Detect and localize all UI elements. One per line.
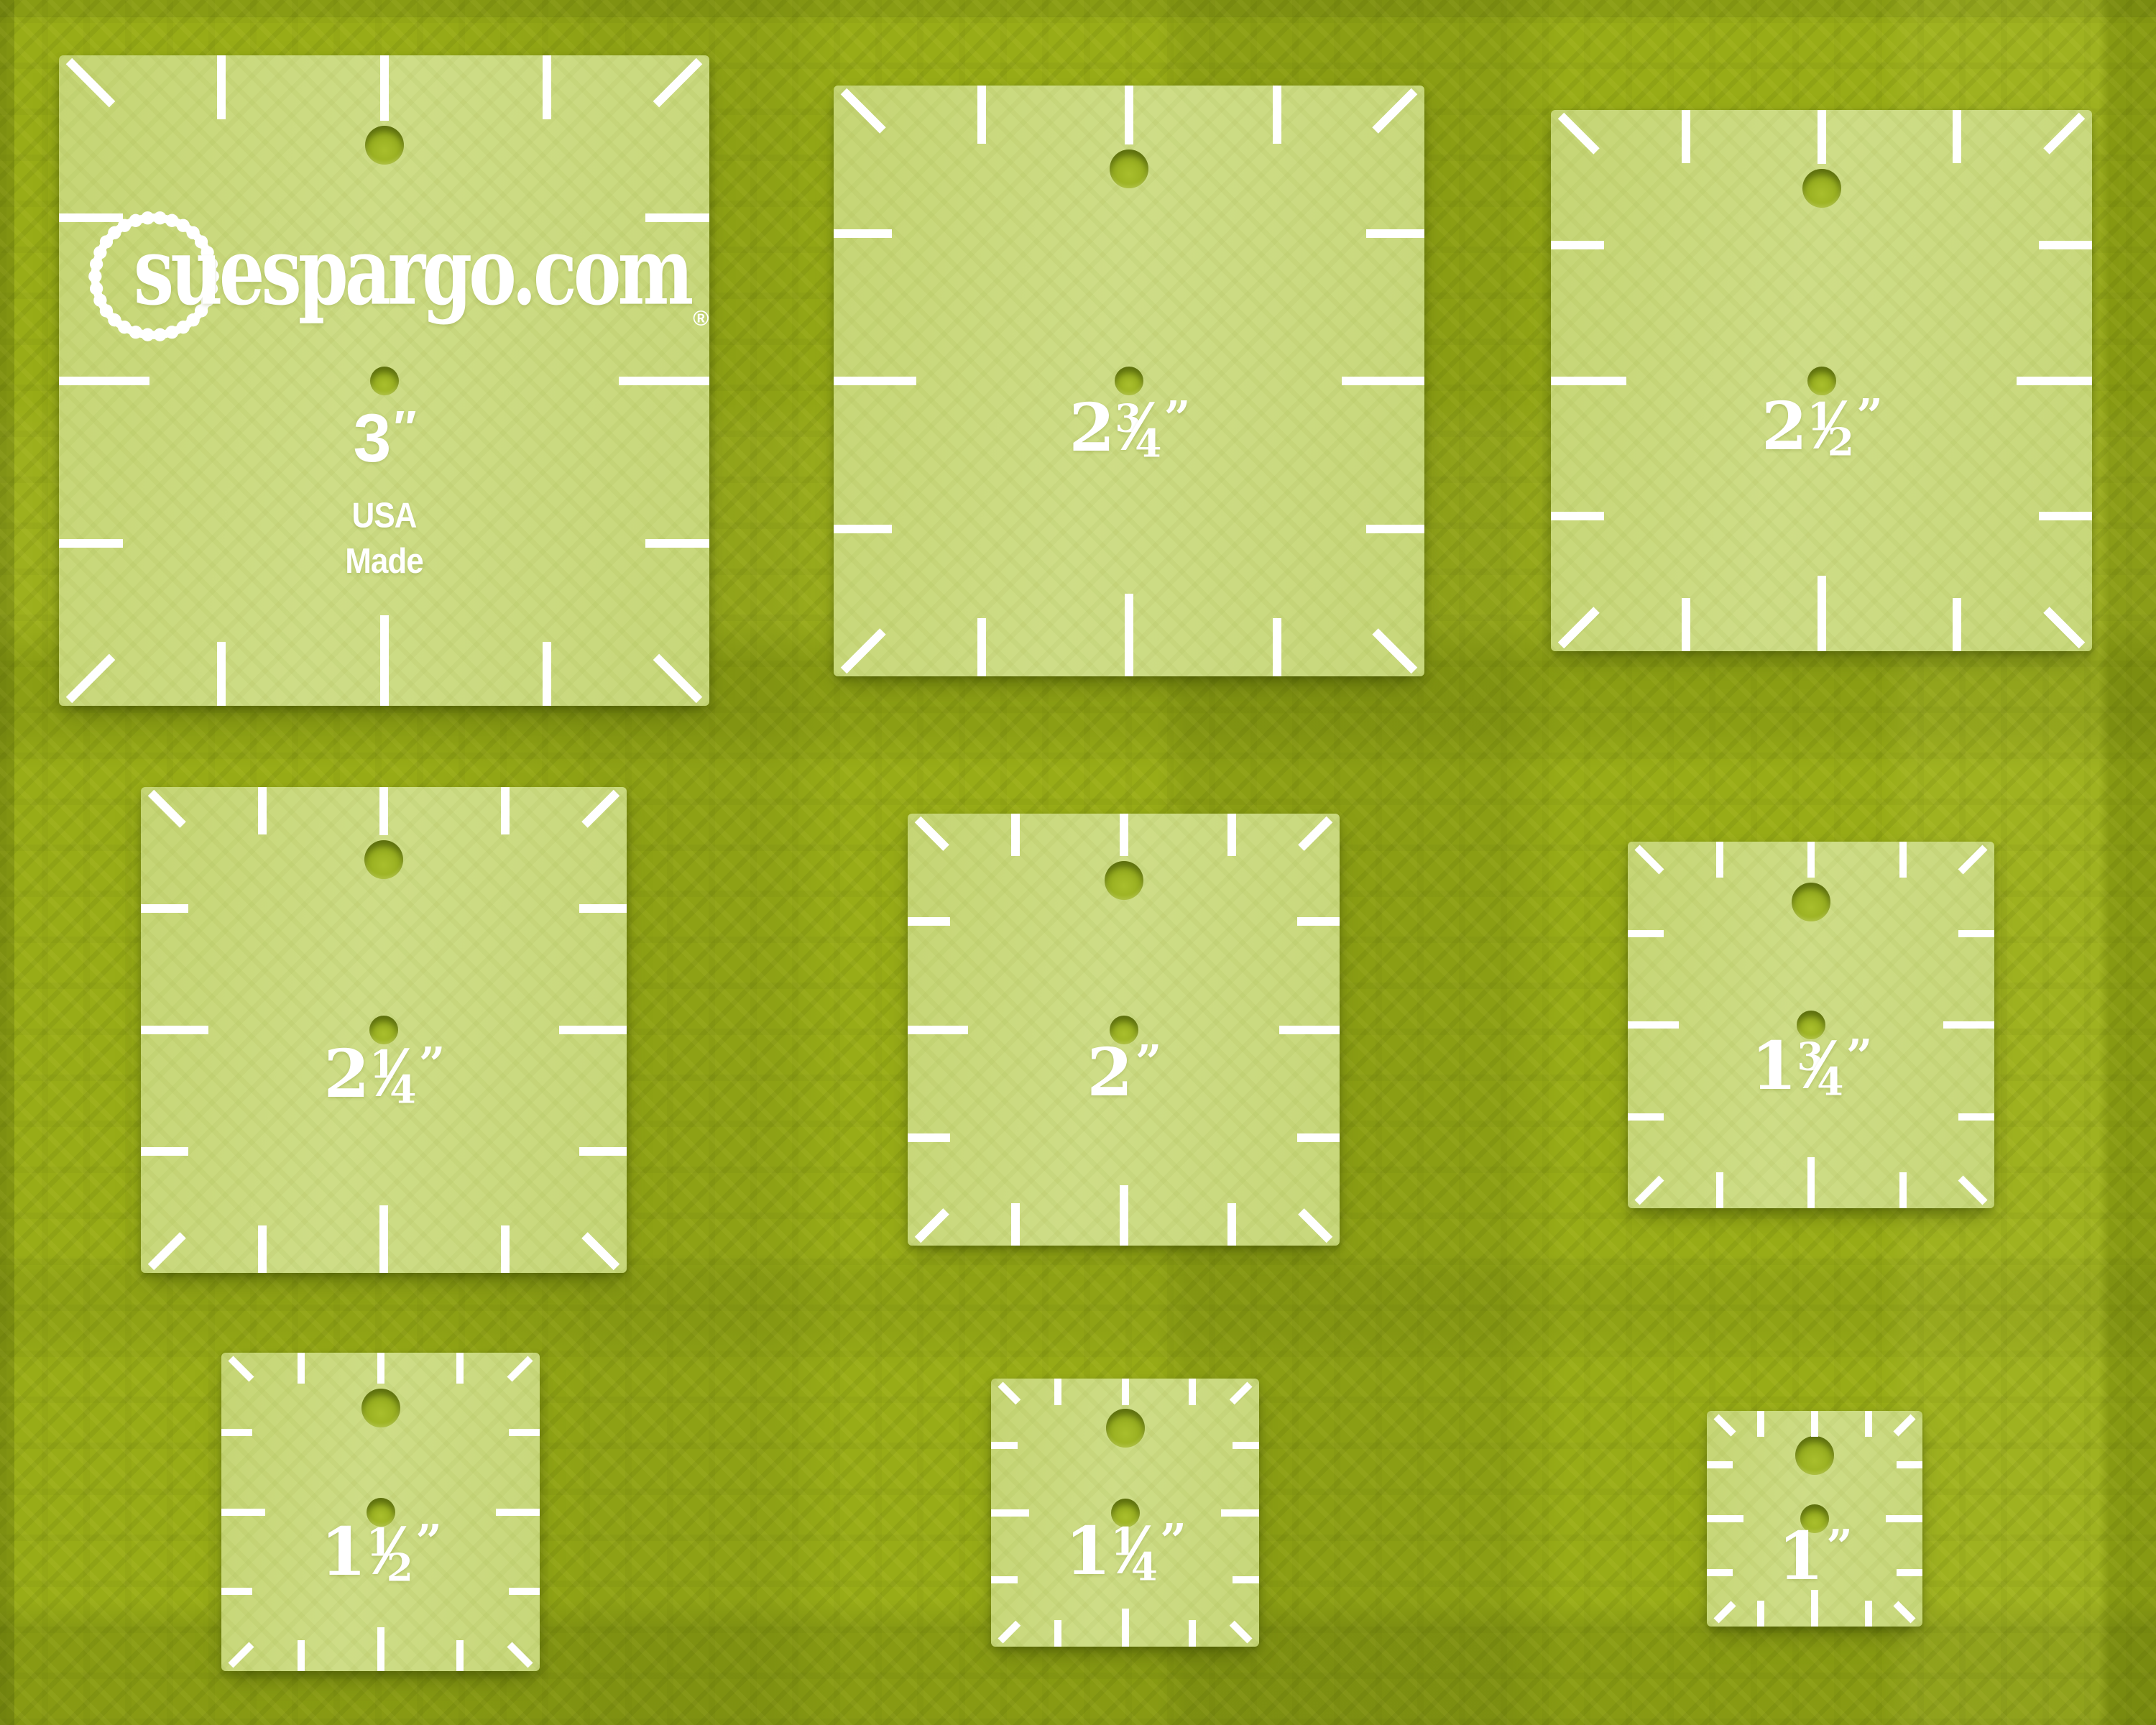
size-whole-number: 1	[1778, 1517, 1824, 1595]
corner-tick-mark	[1713, 1601, 1736, 1623]
tick-mark	[1054, 1620, 1061, 1647]
tick-mark	[298, 1353, 305, 1384]
corner-tick-mark	[1372, 628, 1417, 673]
corner-tick-mark	[66, 58, 116, 108]
tick-mark	[1865, 1411, 1872, 1437]
size-label: 11⁄4”	[991, 1518, 1259, 1586]
inch-marks: ”	[1135, 1036, 1161, 1090]
tick-mark	[991, 1442, 1018, 1449]
tick-mark	[1865, 1601, 1872, 1627]
made-in-usa-line2: Made	[59, 538, 709, 584]
registered-trademark: ®	[693, 307, 709, 331]
corner-tick-mark	[915, 1208, 949, 1243]
template-square-2in: 2”	[908, 814, 1340, 1246]
inch-marks: ”	[1160, 1514, 1185, 1568]
tick-mark	[1807, 842, 1815, 878]
tick-mark	[1054, 1379, 1061, 1405]
corner-tick-mark	[148, 790, 186, 828]
tick-mark	[258, 787, 267, 834]
inch-marks: ”	[1856, 390, 1881, 443]
tick-mark	[217, 642, 226, 706]
tick-mark	[1943, 1021, 1994, 1029]
corner-tick-mark	[653, 654, 703, 704]
tick-mark	[501, 787, 510, 834]
center-pivot-hole	[370, 367, 399, 395]
tick-mark	[141, 904, 188, 913]
tick-mark	[619, 377, 709, 385]
corner-tick-mark	[1298, 816, 1332, 851]
tick-mark	[1122, 1609, 1129, 1647]
corner-tick-mark	[1713, 1414, 1736, 1436]
tick-mark	[379, 787, 388, 835]
template-square-2-1-2in: 21⁄2”	[1551, 110, 2092, 651]
tick-mark	[1189, 1620, 1196, 1647]
tick-mark	[1125, 594, 1133, 676]
hanging-hole	[1795, 1436, 1834, 1475]
corner-tick-mark	[581, 790, 619, 828]
inch-marks: ”	[419, 1038, 444, 1092]
tick-mark	[456, 1353, 464, 1384]
tick-mark	[1953, 110, 1961, 163]
tick-mark	[509, 1588, 540, 1595]
corner-tick-mark	[1893, 1414, 1915, 1436]
hanging-hole	[1802, 169, 1841, 208]
hanging-hole	[365, 126, 404, 165]
tick-mark	[379, 1205, 388, 1273]
fraction-denominator: 2	[387, 1545, 413, 1590]
tick-mark	[1551, 241, 1604, 249]
tick-mark	[1958, 1113, 1994, 1121]
inch-marks: ″	[394, 402, 415, 455]
tick-mark	[1342, 377, 1424, 385]
tick-mark	[1221, 1509, 1259, 1517]
tick-mark	[1628, 930, 1664, 937]
tick-mark	[1120, 814, 1128, 856]
inch-marks: ”	[1826, 1520, 1851, 1574]
tick-mark	[1958, 930, 1994, 937]
tick-mark	[1682, 110, 1690, 163]
tick-mark	[1125, 86, 1133, 144]
template-square-1-3-4in: 13⁄4”	[1628, 842, 1994, 1208]
tick-mark	[2017, 377, 2092, 385]
tick-mark	[1707, 1515, 1743, 1522]
tick-mark	[501, 1225, 510, 1273]
template-square-1-1-4in: 11⁄4”	[991, 1379, 1259, 1647]
tick-mark	[1707, 1461, 1733, 1468]
size-whole-number: 2	[1087, 1034, 1133, 1111]
tick-mark	[380, 55, 389, 121]
corner-tick-mark	[507, 1356, 533, 1381]
inch-marks: ”	[1164, 392, 1189, 446]
size-whole-number: 3	[353, 400, 391, 477]
corner-tick-mark	[581, 1232, 619, 1270]
corner-tick-mark	[915, 816, 949, 851]
corner-tick-mark	[1634, 845, 1664, 874]
tick-mark	[1551, 512, 1604, 520]
tick-mark	[579, 904, 627, 913]
corner-tick-mark	[228, 1356, 254, 1381]
tick-mark	[908, 1133, 950, 1142]
tick-mark	[377, 1353, 384, 1384]
tick-mark	[1366, 229, 1424, 238]
fraction-denominator: 4	[1135, 421, 1161, 466]
tick-mark	[1227, 814, 1236, 856]
made-in-usa-text: USAMade	[59, 492, 709, 584]
tick-mark	[221, 1588, 252, 1595]
corner-tick-mark	[148, 1232, 186, 1270]
made-in-usa-line1: USA	[59, 492, 709, 538]
tick-mark	[1297, 1133, 1340, 1142]
tick-mark	[559, 1026, 627, 1034]
tick-mark	[991, 1509, 1029, 1517]
tick-mark	[141, 1147, 188, 1156]
inch-marks: ”	[415, 1515, 441, 1569]
corner-tick-mark	[1230, 1621, 1253, 1644]
tick-mark	[1899, 1172, 1907, 1208]
product-photo: 3″ suespargo.com®USAMade23⁄4”21⁄2”21⁄4”2…	[0, 0, 2156, 1725]
hanging-hole	[1106, 1409, 1145, 1448]
tick-mark	[298, 1640, 305, 1671]
tick-mark	[59, 377, 149, 385]
tick-mark	[1011, 1203, 1020, 1246]
tick-mark	[1273, 86, 1281, 144]
hanging-hole	[1792, 883, 1830, 921]
tick-mark	[258, 1225, 267, 1273]
tick-mark	[1716, 1172, 1723, 1208]
tick-mark	[1011, 814, 1020, 856]
tick-mark	[2039, 512, 2092, 520]
hanging-hole	[364, 840, 403, 879]
tick-mark	[1628, 1021, 1679, 1029]
tick-mark	[1551, 377, 1626, 385]
tick-mark	[377, 1627, 384, 1671]
tick-mark	[1120, 1185, 1128, 1246]
template-square-2-1-4in: 21⁄4”	[141, 787, 627, 1273]
template-square-1-1-2in: 11⁄2”	[221, 1353, 540, 1671]
hanging-hole	[361, 1389, 400, 1427]
tick-mark	[1279, 1026, 1340, 1034]
corner-tick-mark	[2043, 113, 2085, 155]
tick-mark	[1811, 1411, 1818, 1437]
fraction-denominator: 2	[1828, 419, 1854, 464]
tick-mark	[509, 1429, 540, 1436]
corner-tick-mark	[1372, 88, 1417, 134]
tick-mark	[1628, 1113, 1664, 1121]
tick-mark	[1818, 110, 1826, 164]
tick-mark	[579, 1147, 627, 1156]
corner-tick-mark	[228, 1642, 254, 1667]
size-label: 13⁄4”	[1628, 1033, 1994, 1101]
tick-mark	[834, 377, 916, 385]
corner-tick-mark	[1298, 1208, 1332, 1243]
tick-mark	[1233, 1442, 1259, 1449]
size-label: 23⁄4”	[834, 395, 1424, 463]
corner-tick-mark	[1558, 113, 1600, 155]
hanging-hole	[1105, 861, 1143, 900]
size-label: 1”	[1707, 1523, 1922, 1589]
fraction-denominator: 4	[390, 1067, 416, 1113]
tick-mark	[1811, 1590, 1818, 1627]
size-label: 21⁄4”	[141, 1041, 627, 1109]
size-whole-number: 1	[1065, 1512, 1111, 1590]
tick-mark	[221, 1509, 265, 1516]
tick-mark	[1818, 576, 1826, 651]
tick-mark	[456, 1640, 464, 1671]
size-label: 21⁄2”	[1551, 393, 2092, 461]
corner-tick-mark	[2043, 607, 2085, 648]
tick-mark	[1366, 525, 1424, 533]
tick-mark	[1122, 1379, 1129, 1405]
size-label: 11⁄2”	[221, 1519, 540, 1587]
corner-tick-mark	[1958, 845, 1988, 874]
tick-mark	[221, 1429, 252, 1436]
tick-mark	[380, 615, 389, 706]
template-square-1in: 1”	[1707, 1411, 1922, 1627]
corner-tick-mark	[507, 1642, 533, 1667]
template-square-2-3-4in: 23⁄4”	[834, 86, 1424, 676]
tick-mark	[543, 642, 551, 706]
tick-mark	[141, 1026, 208, 1034]
tick-mark	[1189, 1379, 1196, 1405]
brand-logo-wrap: suespargo.com®	[108, 231, 709, 331]
corner-tick-mark	[1958, 1176, 1988, 1205]
tick-mark	[496, 1509, 540, 1516]
corner-tick-mark	[1558, 607, 1600, 648]
size-whole-number: 2	[1069, 389, 1115, 466]
corner-tick-mark	[841, 628, 886, 673]
corner-tick-mark	[1634, 1176, 1664, 1205]
corner-tick-mark	[998, 1381, 1021, 1404]
brand-logo: suespargo.com®	[108, 231, 709, 331]
hanging-hole	[1110, 149, 1148, 188]
tick-mark	[1273, 618, 1281, 676]
tick-mark	[1757, 1601, 1764, 1627]
size-whole-number: 1	[1751, 1027, 1797, 1105]
inch-marks: ”	[1846, 1030, 1871, 1084]
tick-mark	[1886, 1515, 1922, 1522]
corner-tick-mark	[841, 88, 886, 134]
size-whole-number: 2	[323, 1035, 369, 1113]
tick-mark	[908, 917, 950, 926]
tick-mark	[834, 229, 892, 238]
tick-mark	[1897, 1461, 1922, 1468]
tick-mark	[217, 55, 226, 119]
tick-mark	[908, 1026, 968, 1034]
tick-mark	[977, 618, 986, 676]
tick-mark	[1953, 598, 1961, 651]
size-label: 2”	[908, 1039, 1340, 1105]
brand-logo-text: suespargo.com	[134, 216, 690, 326]
size-whole-number: 2	[1761, 387, 1807, 465]
corner-tick-mark	[1230, 1381, 1253, 1404]
tick-mark	[1807, 1157, 1815, 1208]
template-square-3in: 3″ suespargo.com®USAMade	[59, 55, 709, 706]
tick-mark	[1682, 598, 1690, 651]
corner-tick-mark	[998, 1621, 1021, 1644]
tick-mark	[1757, 1411, 1764, 1437]
size-label: 3″	[59, 405, 709, 473]
tick-mark	[834, 525, 892, 533]
tick-mark	[1716, 842, 1723, 878]
tick-mark	[543, 55, 551, 119]
size-whole-number: 1	[321, 1513, 367, 1591]
tick-mark	[2039, 241, 2092, 249]
corner-tick-mark	[1893, 1601, 1915, 1623]
tick-mark	[1297, 917, 1340, 926]
fraction-denominator: 4	[1131, 1544, 1158, 1589]
corner-tick-mark	[66, 654, 116, 704]
tick-mark	[1227, 1203, 1236, 1246]
tick-mark	[977, 86, 986, 144]
tick-mark	[1899, 842, 1907, 878]
corner-tick-mark	[653, 58, 703, 108]
fraction-denominator: 4	[1817, 1059, 1843, 1105]
